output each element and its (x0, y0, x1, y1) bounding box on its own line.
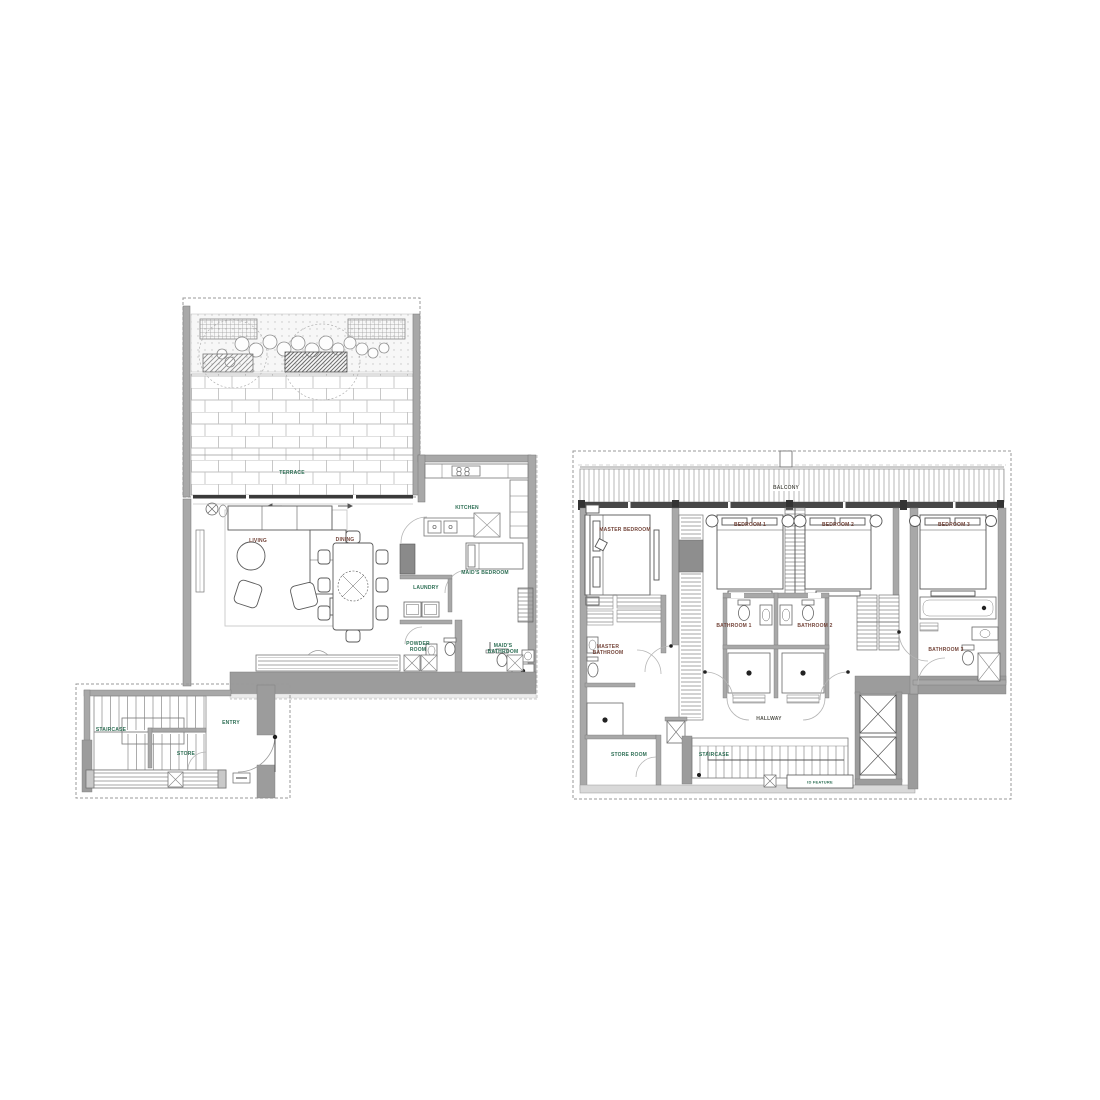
floor-plan-sheet: TERRACE LIVING DINING KITCHEN LAUNDRY MA… (0, 0, 1100, 1100)
lower-level-plan-drawing (70, 292, 540, 807)
upper-level-plan-drawing (568, 445, 1018, 805)
